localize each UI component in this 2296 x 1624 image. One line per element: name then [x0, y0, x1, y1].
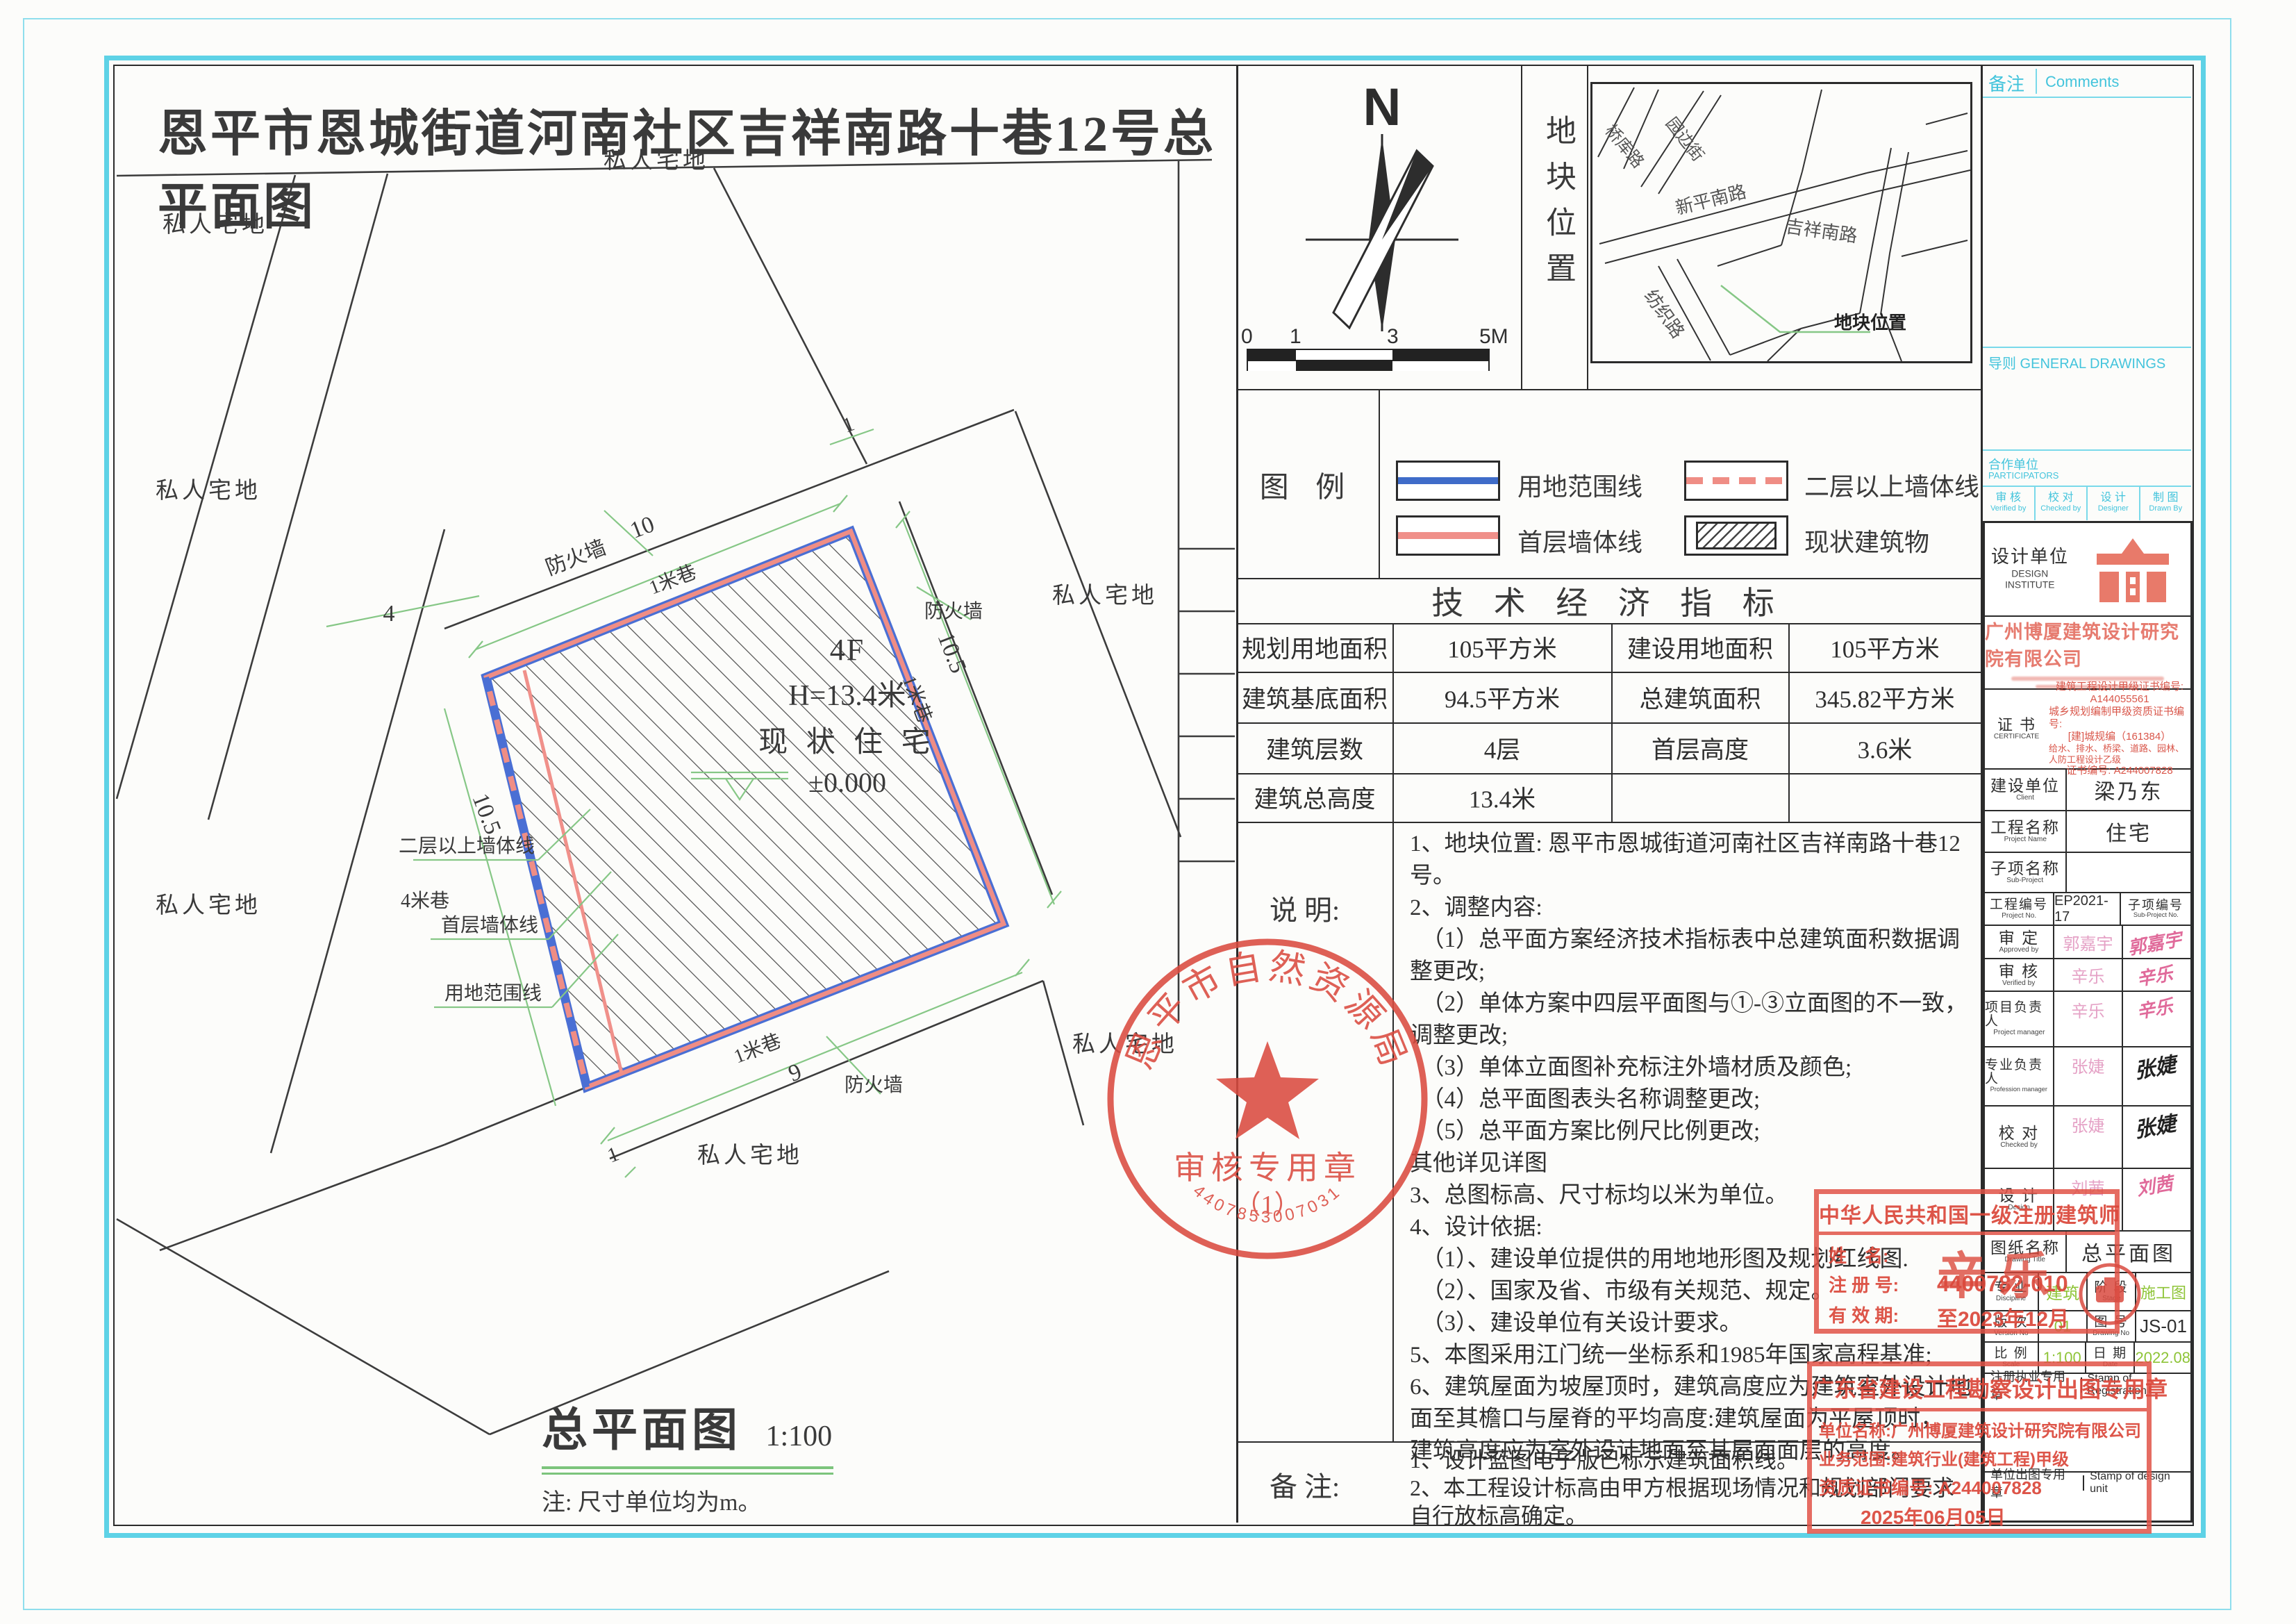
unit-stamp-line3: 资质证书编号: A244007828: [1819, 1474, 2147, 1500]
tech-cell: 建设用地面积: [1627, 630, 1773, 665]
legend-swatch-wall2: [1684, 461, 1788, 501]
parcel-label: 私人宅地: [156, 886, 261, 920]
building-level: ±0.000: [736, 766, 958, 799]
checked-en: Checked by: [2000, 1142, 2037, 1150]
cert-line: [建]城规编（161384）: [2068, 731, 2171, 743]
note-line: 调整更改;: [1410, 1020, 1972, 1052]
legend-swatch-boundary: [1396, 461, 1500, 501]
checked-value: 张婕: [2054, 1107, 2123, 1168]
project-value: 住宅: [2067, 811, 2190, 852]
legend-item-wall2: 二层以上墙体线: [1804, 467, 1979, 503]
note-line: 1、地块位置: 恩平市恩城街道河南社区吉祥南路十巷12号。: [1410, 828, 1972, 892]
tech-cell: 4层: [1484, 731, 1521, 766]
tech-cell: 首层高度: [1652, 731, 1749, 766]
architect-name-label: 姓 名:: [1829, 1242, 1889, 1268]
institute-en1: DESIGN: [2012, 570, 2049, 579]
scale-tick: 5M: [1479, 325, 1508, 349]
pno-zh: 工程编号: [1990, 898, 2048, 912]
designer-signature: 刘茜: [2138, 1168, 2176, 1201]
tb-certificate: 证 书 CERTIFICATE 建筑工程设计甲级证书编号: A144055561…: [1985, 690, 2190, 770]
location-map: 桥库路 园边街 新平南路 吉祥南路 纺织路 地块位置: [1590, 82, 1972, 363]
ann-dim4: 4: [383, 601, 395, 627]
plan-scale: 1:100: [765, 1420, 832, 1452]
legend-label: 图 例: [1260, 464, 1355, 506]
north-letter: N: [1363, 78, 1401, 137]
note-line: （3）单体立面图补充标注外墙材质及颜色;: [1410, 1052, 1972, 1084]
parcel-label: 私人宅地: [1052, 577, 1158, 610]
tb-client: 建设单位Client 梁乃东: [1985, 770, 2190, 811]
stamp-star-icon: [1216, 1041, 1319, 1139]
approved-en: Approved by: [1999, 947, 2039, 954]
client-zh: 建设单位: [1990, 777, 2060, 794]
plan-title-underline: [542, 1466, 833, 1469]
site-plan-area: 恩平市恩城街道河南社区吉祥南路十巷12号总平面图 私人宅地 私人宅地 私人宅地 …: [115, 66, 1235, 1522]
tb-prof: 专业负责人Profession manager 张婕 张婕: [1985, 1047, 2190, 1107]
scale-tick: 0: [1241, 325, 1253, 349]
ann-wall1: 首层墙体线: [441, 910, 538, 938]
client-value: 梁乃东: [2067, 770, 2190, 810]
tb-project: 工程名称Project Name 住宅: [1985, 811, 2190, 853]
pno-value: EP2021-17: [2054, 893, 2121, 925]
ann-wall2: 二层以上墙体线: [399, 831, 535, 859]
tb-company: 广州博厦建筑设计研究院有限公司: [1985, 617, 2190, 690]
note-line: （5）总平面方案比例尺比例更改;: [1410, 1116, 1972, 1147]
stage-value: 施工图: [2136, 1273, 2190, 1310]
prof-zh: 专业负责人: [1985, 1059, 2053, 1086]
pm-zh: 项目负责人: [1985, 1001, 2053, 1029]
design-unit-stamp: 广东省建设工程勘察设计出图专用章 单位名称:广州博厦建筑设计研究院有限公司 业务…: [1807, 1361, 2152, 1534]
parcel-label: 私人宅地: [697, 1136, 803, 1170]
plan-note: 注: 尺寸单位均为m。: [542, 1483, 833, 1517]
project-en: Project Name: [2004, 836, 2046, 844]
preprint-col2-zh: 校 对: [2036, 488, 2087, 504]
tb-verified: 审 核Verified by 辛乐 辛乐: [1985, 959, 2190, 992]
site-plan-lines: [115, 66, 1235, 1522]
prof-en: Profession manager: [1990, 1087, 2047, 1094]
tech-cell: 94.5平方米: [1445, 680, 1560, 715]
note-line: （2）单体方案中四层平面图与①-③立面图的不一致，: [1410, 988, 1972, 1020]
preprint-col4-en: Drawn By: [2140, 504, 2192, 513]
cert-line: 给水、排水、桥梁、道路、园林、人防工程设计乙级: [2049, 743, 2190, 765]
prof-value: 张婕: [2054, 1047, 2123, 1105]
institute-zh: 设计单位: [1991, 547, 2069, 566]
tb-approved: 审 定Approved by 郭嘉宇 郭嘉宇: [1985, 926, 2190, 959]
building-status: 现 状 住 宅: [736, 718, 958, 761]
tb-pm: 项目负责人Project manager 辛乐 辛乐: [1985, 992, 2190, 1047]
prof-signature: 张婕: [2135, 1046, 2179, 1085]
unit-stamp-line2: 业务范围:建筑行业(建筑工程)甲级: [1819, 1445, 2147, 1470]
notes-label: 说 明:: [1270, 888, 1340, 928]
preprint-col3-en: Designer: [2088, 504, 2139, 513]
note-line: （1）总平面方案经济技术指标表中总建筑面积数据调整更改;: [1410, 924, 1972, 988]
cert-line: 城乡规划编制甲级资质证书编号:: [2049, 706, 2190, 731]
tb-subproject: 子项名称Sub-Project: [1985, 853, 2190, 893]
unit-stamp-date: 2025年06月05日: [1861, 1502, 2147, 1530]
institute-logo-icon: [2091, 533, 2174, 606]
tech-cell: 建筑层数: [1266, 731, 1363, 766]
scale-tick: 1: [1290, 325, 1301, 349]
plan-title-block: 总平面图 1:100 注: 尺寸单位均为m。: [542, 1393, 833, 1517]
map-roads: [1592, 84, 1970, 361]
tech-cell: 建筑基底面积: [1242, 680, 1388, 715]
checked-zh: 校 对: [1999, 1125, 2039, 1141]
scale-bar: 0 1 3 5M: [1247, 325, 1491, 371]
preprint-col1-en: Verified by: [1983, 504, 2034, 513]
approved-signature: 郭嘉宇: [2129, 924, 2185, 960]
pm-value: 辛乐: [2054, 992, 2123, 1046]
sub-zh: 子项名称: [1990, 860, 2060, 877]
dno-value: JS-01: [2136, 1311, 2190, 1341]
preprint-area: 备注 Comments 导则 GENERAL DRAWINGS 合作单位 PAR…: [1983, 66, 2191, 521]
cert-line: 建筑工程设计甲级证书编号:: [2056, 681, 2183, 693]
verified-zh: 审 核: [1999, 963, 2039, 979]
preprint-participators-en: PARTICIPATORS: [1988, 470, 2058, 481]
unit-stamp-title: 广东省建设工程勘察设计出图专用章: [1812, 1366, 2147, 1411]
tech-cell: 建筑总高度: [1254, 780, 1375, 815]
architect-stamp-title: 中华人民共和国一级注册建筑师: [1819, 1194, 2115, 1235]
building-floors: 4F: [736, 632, 958, 668]
tech-cell: 13.4米: [1469, 780, 1536, 815]
tech-title: 技 术 经 济 指 标: [1431, 578, 1786, 624]
legend-item-boundary: 用地范围线: [1517, 467, 1642, 503]
legend-swatch-existing: [1684, 515, 1788, 556]
tb-projectno: 工程编号Project No. EP2021-17 子项编号Sub-Projec…: [1985, 893, 2190, 926]
pm-signature: 辛乐: [2138, 991, 2176, 1024]
tech-cell: 总建筑面积: [1639, 680, 1761, 715]
date-zh: 日 期: [2093, 1347, 2127, 1361]
plan-title: 总平面图: [542, 1405, 742, 1456]
ann-boundary: 用地范围线: [444, 978, 542, 1006]
unit-stamp-line1: 单位名称:广州博厦建筑设计研究院有限公司: [1819, 1417, 2147, 1441]
company-round-seal: [2077, 1261, 2143, 1327]
tb-institute: 设计单位 DESIGN INSTITUTE: [1985, 523, 2190, 617]
approved-value: 郭嘉宇: [2054, 926, 2123, 958]
cert-zh: 证 书: [1997, 717, 2036, 733]
parcel-label: 私人宅地: [163, 206, 268, 239]
verified-value: 辛乐: [2054, 959, 2123, 991]
scale-zh: 比 例: [1994, 1347, 2028, 1361]
preprint-col2-en: Checked by: [2036, 504, 2087, 513]
legend-item-existing: 现状建筑物: [1804, 522, 1929, 558]
preprint-col1-zh: 审 核: [1983, 488, 2034, 504]
parcel-label: 私人宅地: [604, 142, 709, 175]
architect-reg-label: 注 册 号:: [1829, 1271, 1899, 1297]
preprint-col3-zh: 设 计: [2088, 488, 2139, 504]
sno-zh: 子项编号: [2128, 899, 2183, 912]
tech-cell: 345.82平方米: [1815, 680, 1954, 715]
legend-item-wall1: 首层墙体线: [1517, 522, 1642, 558]
institute-en2: INSTITUTE: [2005, 581, 2054, 590]
project-zh: 工程名称: [1990, 819, 2060, 836]
checked-signature: 张婕: [2135, 1105, 2179, 1144]
location-label: 地块位置: [1554, 115, 1585, 298]
note-line: 2、调整内容:: [1410, 892, 1972, 924]
architect-stamp: 中华人民共和国一级注册建筑师 姓 名: 辛 乐 注 册 号: 4400782-0…: [1814, 1189, 2120, 1334]
drawing-sheet: 恩平市恩城街道河南社区吉祥南路十巷12号总平面图 私人宅地 私人宅地 私人宅地 …: [0, 0, 2296, 1624]
preprint-general: 导则 GENERAL DRAWINGS: [1988, 352, 2165, 372]
note-line: 其他详见详图: [1410, 1147, 1972, 1179]
tech-cell: 105平方米: [1447, 630, 1557, 665]
gov-round-stamp: 恩平市自然资源局 审核专用章 （1） 4407853007031: [1101, 934, 1434, 1275]
sno-en: Sub-Project No.: [2133, 912, 2179, 919]
architect-reg: 4400782-010: [1937, 1271, 2068, 1297]
ann-firewall3: 防火墙: [845, 1070, 903, 1097]
tb-checked: 校 对Checked by 张婕 张婕: [1985, 1107, 2190, 1169]
pno-en: Project No.: [2002, 912, 2036, 920]
architect-valid-label: 有 效 期:: [1829, 1302, 1899, 1327]
cert-line: A144055561: [2090, 693, 2149, 706]
legend-swatch-wall1: [1396, 515, 1500, 556]
plan-title-underline2: [542, 1473, 833, 1475]
ann-lane4: 4米巷: [401, 886, 449, 913]
tech-cell: 105平方米: [1830, 630, 1940, 665]
cert-en: CERTIFICATE: [1994, 734, 2039, 741]
verified-signature: 辛乐: [2138, 959, 2176, 991]
tech-cell: 规划用地面积: [1242, 630, 1388, 665]
tech-cell: 3.6米: [1858, 731, 1913, 766]
ann-firewall2: 防火墙: [924, 596, 983, 624]
sub-en: Sub-Project: [2007, 877, 2044, 885]
architect-valid: 至2023年12月: [1937, 1302, 2069, 1332]
preprint-comments-zh: 备注: [1988, 70, 2024, 96]
company-name: 广州博厦建筑设计研究院有限公司: [1985, 617, 2190, 671]
note-line: （4）总平面图表头名称调整更改;: [1410, 1084, 1972, 1116]
remarks-label: 备 注:: [1270, 1464, 1340, 1505]
parcel-label: 私人宅地: [156, 472, 261, 505]
preprint-col4-zh: 制 图: [2140, 488, 2192, 504]
approved-zh: 审 定: [1999, 929, 2039, 946]
map-marker: 地块位置: [1834, 309, 1906, 335]
north-arrow: N: [1285, 73, 1479, 337]
client-en: Client: [2016, 795, 2034, 802]
scale-tick: 3: [1387, 325, 1399, 349]
preprint-comments-en: Comments: [2045, 73, 2119, 91]
verified-en: Verified by: [2002, 979, 2035, 987]
pm-en: Project manager: [1993, 1029, 2045, 1037]
stamp-mid-text: 审核专用章: [1174, 1150, 1361, 1186]
